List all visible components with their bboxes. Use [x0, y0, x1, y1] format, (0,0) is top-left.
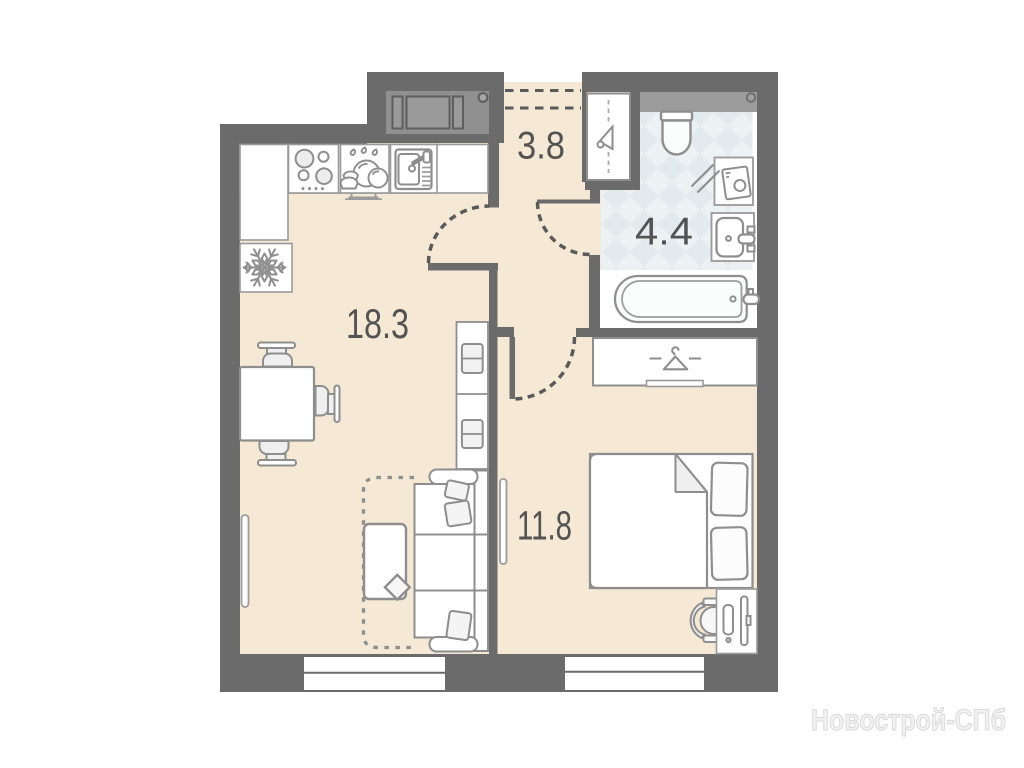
- svg-text:18.3: 18.3: [346, 300, 409, 347]
- svg-text:3.8: 3.8: [517, 125, 565, 168]
- svg-text:11.8: 11.8: [517, 503, 572, 549]
- svg-text:4.4: 4.4: [635, 211, 693, 254]
- svg-text:Новострой-СПб: Новострой-СПб: [811, 704, 1006, 737]
